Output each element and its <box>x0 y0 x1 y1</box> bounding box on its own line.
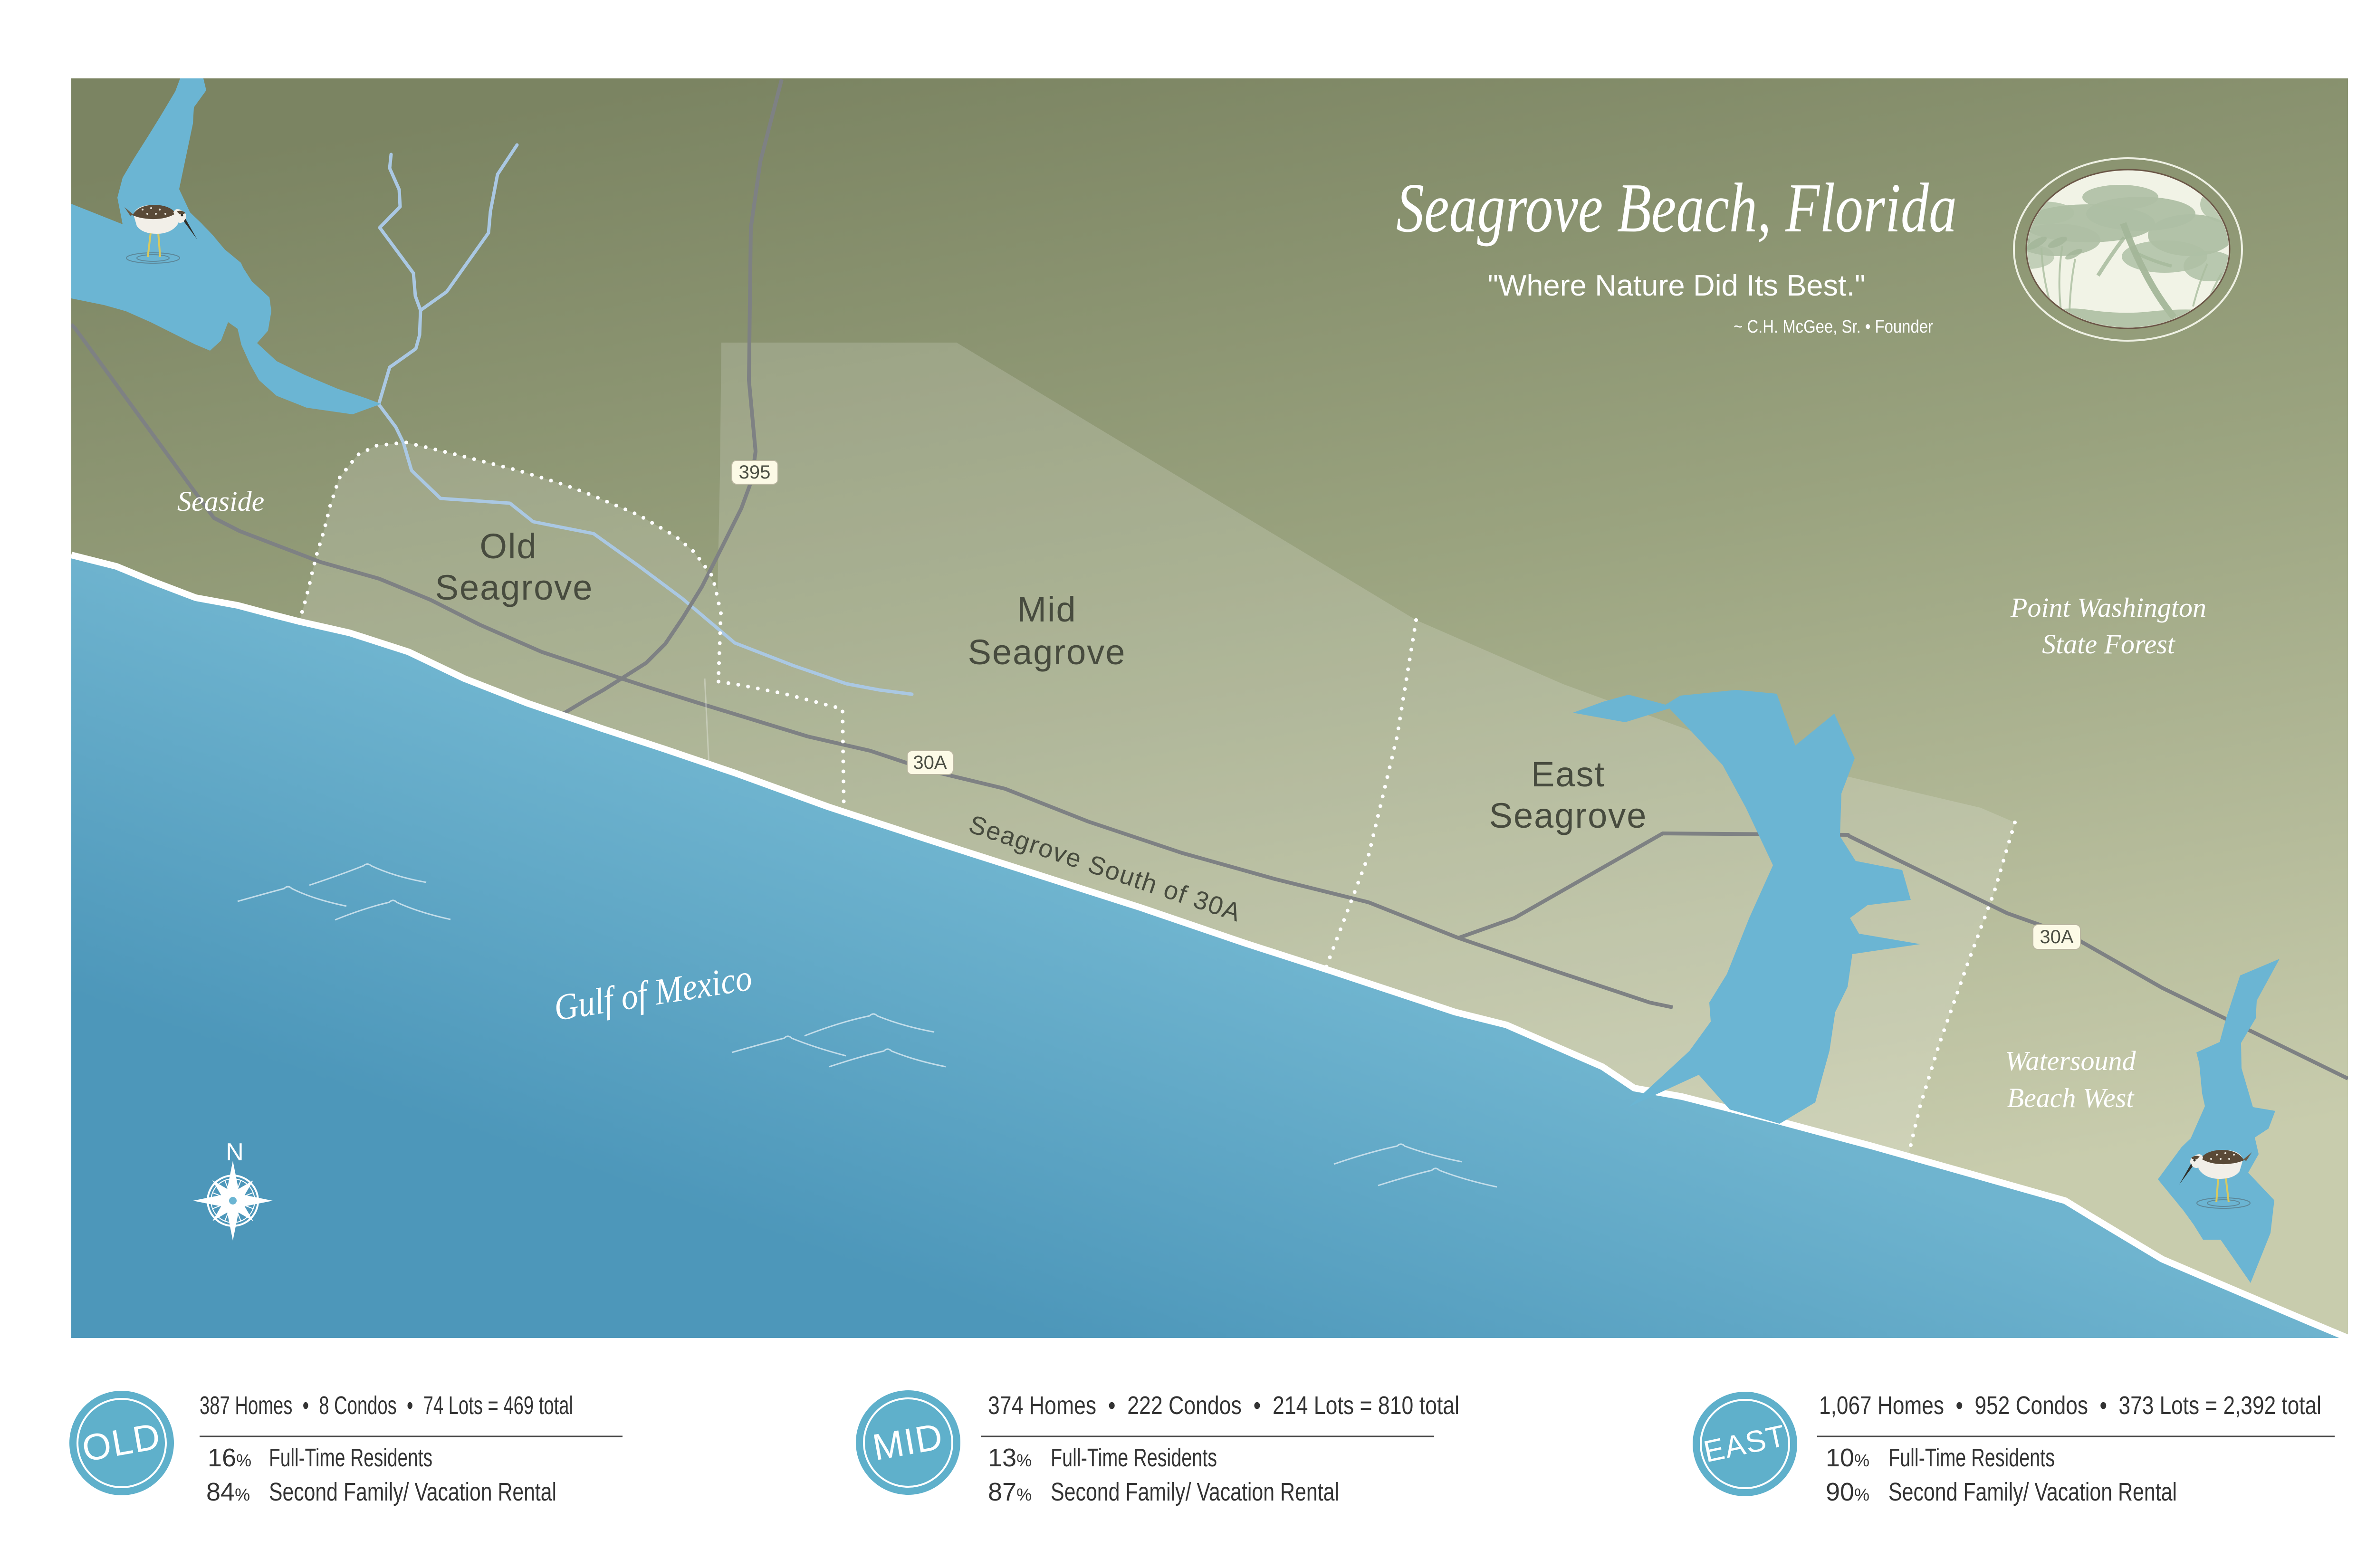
svg-text:Seagrove: Seagrove <box>968 632 1126 672</box>
svg-text:N: N <box>226 1138 244 1166</box>
svg-text:Second Family/ Vacation Rental: Second Family/ Vacation Rental <box>1051 1478 1339 1506</box>
svg-text:~ C.H. McGee, Sr. • Founder: ~ C.H. McGee, Sr. • Founder <box>1734 317 1933 337</box>
svg-text:Point Washington: Point Washington <box>2010 592 2206 623</box>
svg-text:"Where Nature Did Its Best.": "Where Nature Did Its Best." <box>1488 269 1866 302</box>
svg-text:State Forest: State Forest <box>2042 629 2176 660</box>
svg-text:Seagrove Beach, Florida: Seagrove Beach, Florida <box>1396 169 1957 247</box>
svg-text:30A: 30A <box>913 752 947 773</box>
svg-text:Seagrove: Seagrove <box>435 568 594 607</box>
svg-text:Watersound: Watersound <box>2005 1045 2136 1076</box>
svg-text:395: 395 <box>739 462 771 483</box>
svg-text:Full-Time Residents: Full-Time Residents <box>1888 1444 2055 1472</box>
svg-text:Seagrove: Seagrove <box>1489 796 1648 835</box>
svg-text:374 Homes • 222 Condos • 2: 374 Homes • 222 Condos • 214 Lots = 810 … <box>988 1391 1459 1420</box>
svg-text:Second Family/ Vacation Rental: Second Family/ Vacation Rental <box>269 1478 556 1506</box>
svg-text:387 Homes • 8 Condos • 74: 387 Homes • 8 Condos • 74 Lots = 469 tot… <box>200 1391 573 1420</box>
svg-text:Old: Old <box>479 526 537 566</box>
svg-text:Full-Time Residents: Full-Time Residents <box>1051 1444 1217 1472</box>
svg-text:Beach West: Beach West <box>2007 1082 2135 1113</box>
svg-text:East: East <box>1531 755 1605 794</box>
svg-text:1,067 Homes • 952 Condos •: 1,067 Homes • 952 Condos • 373 Lots = 2,… <box>1819 1391 2321 1420</box>
svg-text:30A: 30A <box>2040 927 2073 947</box>
svg-text:Second Family/ Vacation Rental: Second Family/ Vacation Rental <box>1888 1478 2177 1506</box>
svg-text:Mid: Mid <box>1017 590 1076 629</box>
svg-text:Seaside: Seaside <box>177 486 264 517</box>
svg-text:Full-Time Residents: Full-Time Residents <box>269 1444 432 1472</box>
